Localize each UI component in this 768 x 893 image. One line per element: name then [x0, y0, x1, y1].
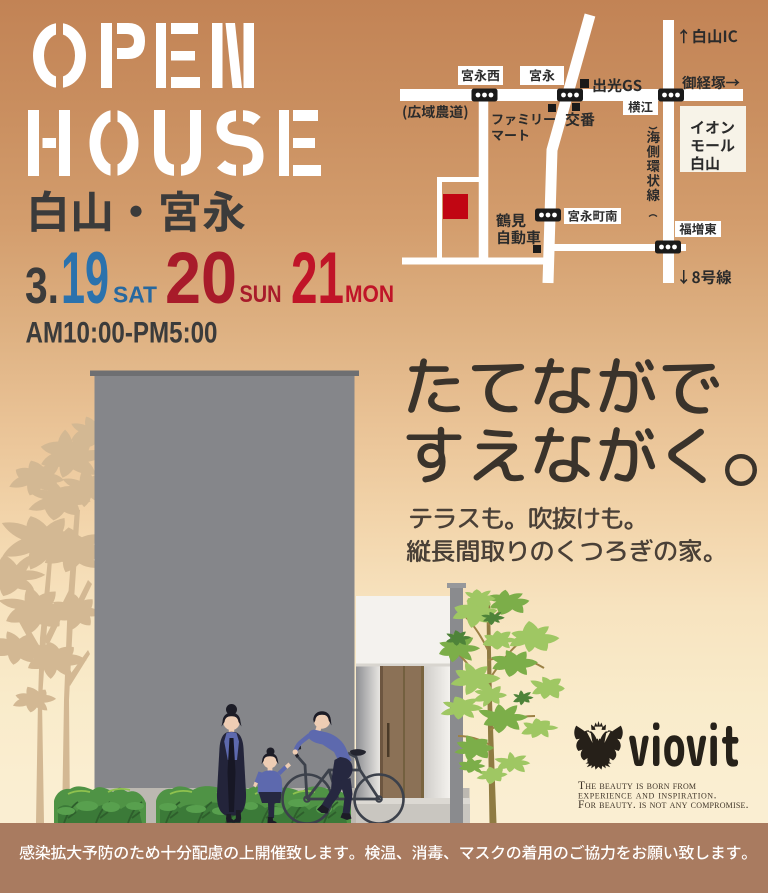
- svg-text:3.: 3.: [25, 257, 59, 314]
- svg-text:19: 19: [61, 238, 109, 319]
- svg-text:For beauty. is not any comprom: For beauty. is not any compromise.: [578, 799, 749, 811]
- svg-text:21: 21: [291, 238, 344, 319]
- svg-text:SAT: SAT: [113, 282, 157, 308]
- svg-text:20: 20: [165, 238, 237, 319]
- svg-text:SUN: SUN: [240, 281, 282, 308]
- svg-text:AM10:00-PM5:00: AM10:00-PM5:00: [26, 317, 218, 350]
- svg-text:MON: MON: [345, 281, 394, 308]
